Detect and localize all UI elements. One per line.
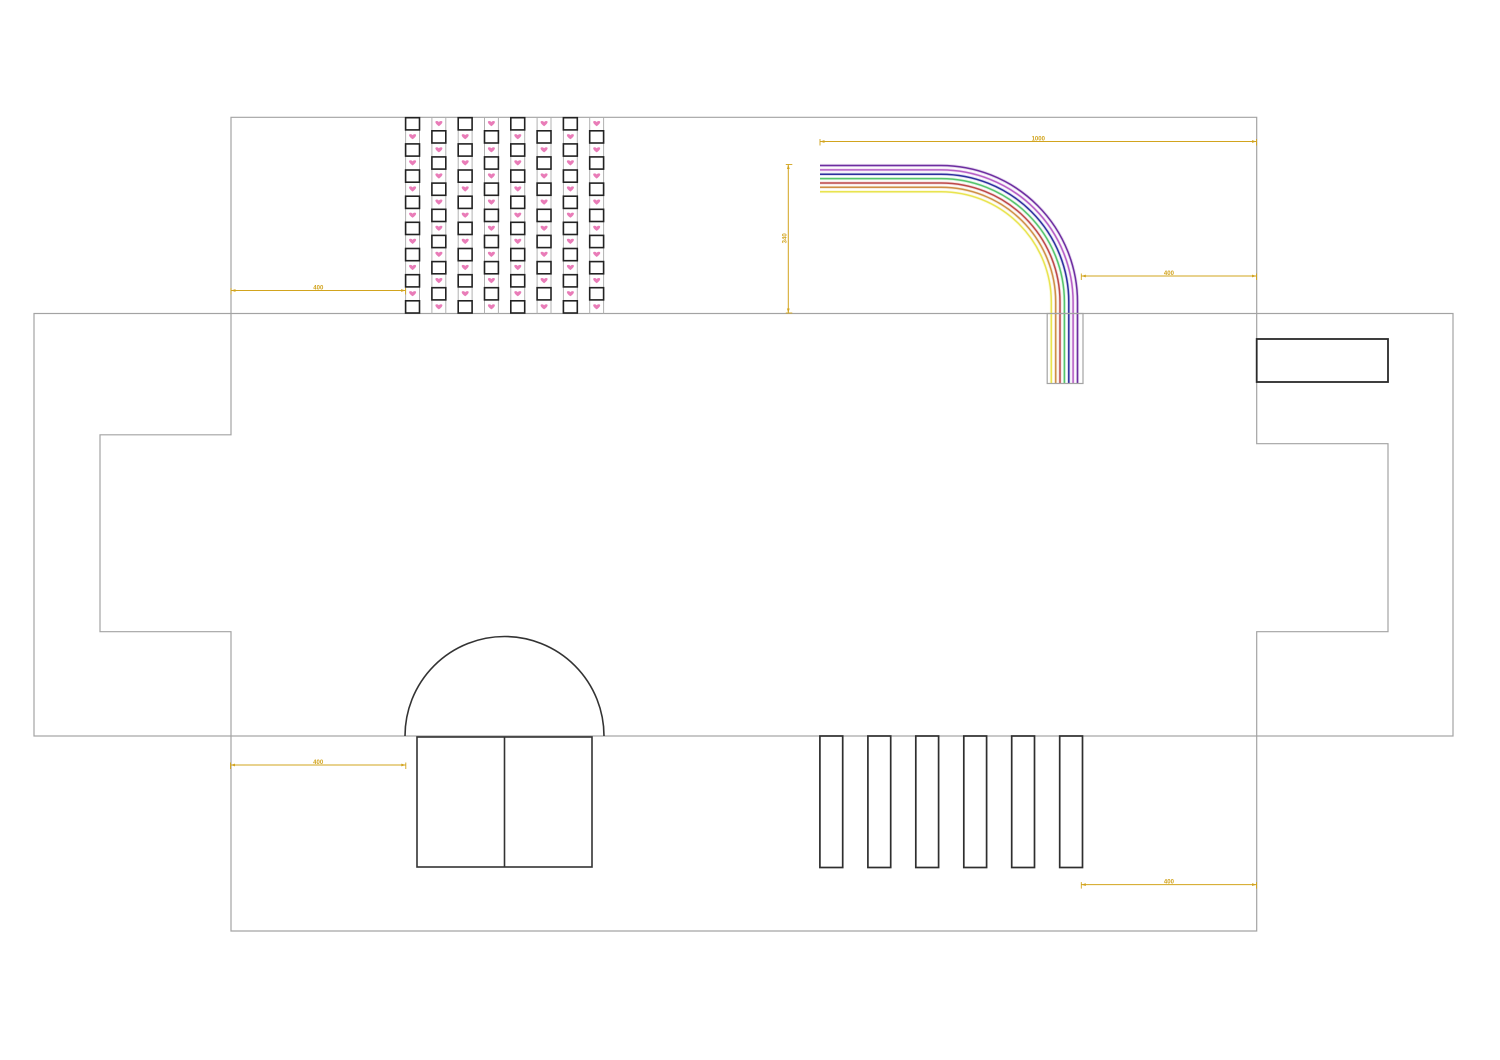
svg-text:400: 400 — [1164, 879, 1175, 885]
svg-text:1000: 1000 — [1032, 136, 1046, 142]
svg-text:400: 400 — [313, 760, 324, 766]
svg-text:400: 400 — [313, 285, 324, 291]
svg-text:400: 400 — [1164, 271, 1175, 277]
svg-text:340: 340 — [783, 233, 789, 244]
